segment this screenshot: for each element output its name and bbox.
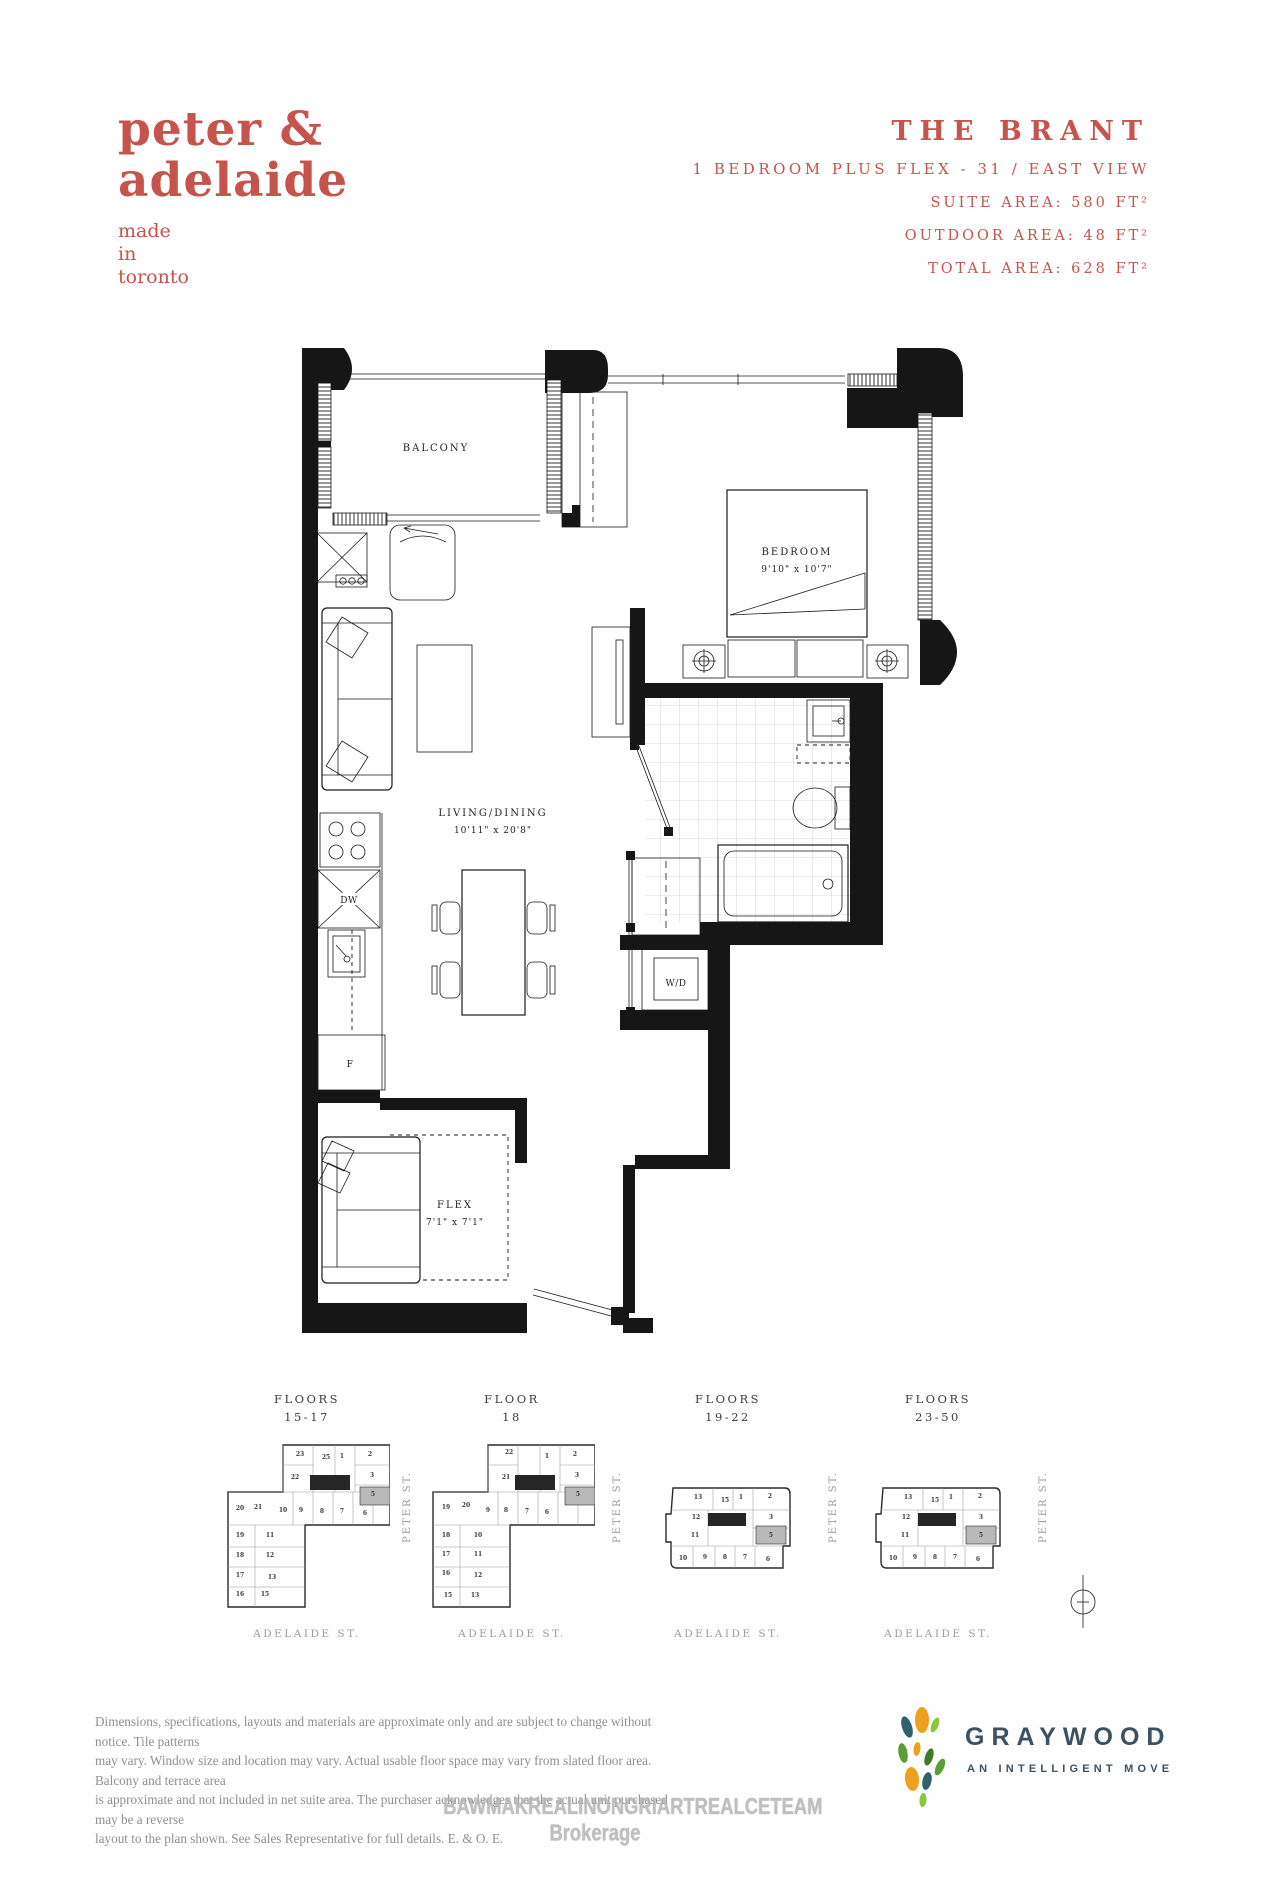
- dining-chair: [527, 962, 547, 998]
- nightstand-right: [867, 645, 908, 678]
- keyplan-unit-number: 2: [978, 1493, 982, 1500]
- keyplan-unit-number: 10: [889, 1555, 897, 1562]
- peter-street-label-3: PETER ST.: [828, 1452, 839, 1562]
- keyplan-unit-number: 9: [913, 1554, 917, 1561]
- dining-chair: [440, 902, 460, 934]
- keyplan-unit-number: 11: [901, 1532, 909, 1539]
- keyplan-unit-number: 5: [371, 1491, 375, 1498]
- balcony-window-right: [547, 380, 561, 513]
- wall-bedroom-south: [635, 683, 883, 698]
- bed: [727, 490, 867, 637]
- keyplan-unit-number: 13: [268, 1574, 276, 1581]
- disclaimer-line: Dimensions, specifications, layouts and …: [95, 1712, 675, 1751]
- balcony-window-left-1: [318, 383, 331, 441]
- balcony-label: BALCONY: [403, 443, 469, 454]
- keyplan-unit-number: 1: [545, 1453, 549, 1460]
- fridge-label: F: [347, 1060, 354, 1070]
- wall-flex-top: [380, 1098, 527, 1110]
- graywood-logo: GRAYWOOD AN INTELLIGENT MOVE: [895, 1705, 1195, 1815]
- suite-subtitle: 1 BEDROOM PLUS FLEX - 31 / EAST VIEW: [693, 160, 1150, 178]
- dining-table: [432, 870, 555, 1015]
- keyplan-unit-number: 8: [723, 1554, 727, 1561]
- balcony-window-bottom: [333, 513, 387, 525]
- keyplan-unit-number: 23: [296, 1451, 304, 1458]
- keyplan-floors-23-50: 131512123115109876: [873, 1480, 1003, 1572]
- keyplan-unit-number: 7: [743, 1554, 747, 1561]
- floorplan: BALCONY BEDROOM 9'10" x 10'7": [300, 345, 965, 1340]
- graywood-leaves-icon: [895, 1705, 955, 1809]
- kitchen-cabinet: [317, 533, 367, 587]
- brokerage-watermark: BAWMAKREALINONGRIARTREALCETEAM Brokerage: [443, 1795, 747, 1848]
- keyplan-unit-number: 12: [902, 1514, 910, 1521]
- entry-door-hinge: [611, 1307, 629, 1325]
- keyplan-unit-number: 21: [254, 1504, 262, 1511]
- wall-entry-right: [623, 1165, 635, 1313]
- keyplan-unit-number: 17: [236, 1572, 244, 1579]
- keyplan-unit-number: 3: [769, 1514, 773, 1521]
- keyplan-unit-number: 15: [931, 1497, 939, 1504]
- suite-header: THE BRANT 1 BEDROOM PLUS FLEX - 31 / EAS…: [693, 116, 1150, 277]
- keyplan-unit-number: 5: [979, 1532, 983, 1539]
- keyplan-unit-number: 1: [340, 1453, 344, 1460]
- keyplan-unit-number: 7: [525, 1508, 529, 1515]
- keyplan-unit-number: 18: [236, 1552, 244, 1559]
- kitchen-sink: [328, 930, 365, 977]
- brochure-page: peter & adelaide made in toronto THE BRA…: [0, 0, 1267, 1900]
- keyplan-unit-number: 9: [299, 1507, 303, 1514]
- logo-line2: adelaide: [118, 155, 348, 206]
- keyplan-unit-number: 2: [368, 1451, 372, 1458]
- keyplan-unit-number: 17: [442, 1551, 450, 1558]
- keyplan-unit-number: 15: [721, 1497, 729, 1504]
- keyplan-unit-number: 6: [976, 1556, 980, 1563]
- keyplan-title-4: FLOORS23-50: [853, 1390, 1023, 1426]
- wall-wd-right: [708, 935, 730, 1155]
- keyplan-unit-number: 5: [769, 1532, 773, 1539]
- wall-kitchen-bottom: [318, 1090, 380, 1103]
- keyplan-unit-number: 6: [545, 1509, 549, 1516]
- keyplan-unit-number: 10: [474, 1532, 482, 1539]
- keyplan-unit-number: 5: [576, 1491, 580, 1498]
- total-area: TOTAL AREA: 628 FT²: [693, 261, 1150, 277]
- disclaimer-line: may vary. Window size and location may v…: [95, 1751, 675, 1790]
- flex-pillow-2: [318, 1163, 350, 1193]
- keyplan-unit-number: 7: [340, 1508, 344, 1515]
- wall-bottom: [303, 1303, 527, 1333]
- keyplan-unit-number: 20: [236, 1505, 244, 1512]
- keyplan-unit-number: 10: [679, 1555, 687, 1562]
- compass-icon: [1058, 1575, 1108, 1630]
- dishwasher-label: DW: [340, 896, 358, 906]
- keyplan-unit-number: 8: [320, 1508, 324, 1515]
- armchair-back: [400, 536, 446, 542]
- tv-unit: [592, 627, 630, 737]
- adelaide-street-label-2: ADELAIDE ST.: [427, 1628, 597, 1640]
- balcony-window-left-2: [318, 447, 331, 508]
- floorplan-svg: BALCONY BEDROOM 9'10" x 10'7": [300, 345, 965, 1340]
- keyplan-unit-number: 9: [486, 1507, 490, 1514]
- bed-blanket-fold: [730, 573, 865, 615]
- cooktop: [320, 813, 380, 867]
- outdoor-area: OUTDOOR AREA: 48 FT²: [693, 228, 1150, 244]
- keyplan-title-1: FLOORS15-17: [222, 1390, 392, 1426]
- keyplan-unit-number: 20: [462, 1502, 470, 1509]
- keyplan-unit-number: 6: [766, 1556, 770, 1563]
- keyplan-unit-number: 19: [236, 1532, 244, 1539]
- keyplan-unit-number: 1: [949, 1494, 953, 1501]
- keyplan-unit-number: 11: [474, 1551, 482, 1558]
- keyplan-unit-number: 12: [692, 1514, 700, 1521]
- keyplan-floors-19-22: 131512123115109876: [663, 1480, 793, 1572]
- keyplan-unit-number: 16: [236, 1591, 244, 1598]
- logo-tagline-2: in: [118, 243, 348, 266]
- slider-arrow: [404, 526, 438, 534]
- wall-bedroom-ne: [847, 388, 930, 428]
- keyplan-floor-18: 22122135192098761810171116121513: [430, 1437, 595, 1612]
- adelaide-street-label-3: ADELAIDE ST.: [643, 1628, 813, 1640]
- adelaide-street-label-4: ADELAIDE ST.: [853, 1628, 1023, 1640]
- keyplan-unit-number: 13: [904, 1494, 912, 1501]
- peter-street-label-2: PETER ST.: [612, 1452, 623, 1562]
- graywood-wordmark: GRAYWOOD: [965, 1723, 1171, 1752]
- keyplan-unit-number: 22: [505, 1449, 513, 1456]
- sofa: [322, 608, 392, 790]
- keyplan-unit-number: 3: [370, 1472, 374, 1479]
- wd-label: W/D: [666, 979, 687, 989]
- suite-area: SUITE AREA: 580 FT²: [693, 195, 1150, 211]
- wall-bedroom-closet-cap: [572, 505, 580, 527]
- flex-sofa: [318, 1137, 420, 1283]
- wall-living-bath: [630, 608, 645, 745]
- keyplan-unit-number: 15: [261, 1591, 269, 1598]
- logo-line1: peter &: [118, 104, 348, 155]
- keyplan-unit-number: 8: [933, 1554, 937, 1561]
- dining-chair: [440, 962, 460, 998]
- flex-label: FLEX: [437, 1200, 473, 1211]
- keyplan-unit-number: 18: [442, 1532, 450, 1539]
- wall-bath-right: [850, 692, 883, 945]
- keyplan-unit-number: 6: [363, 1510, 367, 1517]
- graywood-tagline: AN INTELLIGENT MOVE: [967, 1763, 1173, 1775]
- dishwasher: DW: [318, 870, 380, 928]
- washer-dryer: W/D: [642, 947, 708, 1010]
- bedroom-window-ne: [848, 374, 897, 386]
- keyplan-unit-number: 9: [703, 1554, 707, 1561]
- keyplan-title-2: FLOOR18: [427, 1390, 597, 1426]
- keyplan-unit-number: 3: [575, 1472, 579, 1479]
- bedroom-label: BEDROOM: [762, 547, 833, 558]
- keyplan-unit-number: 3: [979, 1514, 983, 1521]
- bed-bench-right: [797, 640, 863, 677]
- keyplan-unit-number: 8: [504, 1507, 508, 1514]
- foyer-closet: [562, 392, 627, 527]
- keyplan-unit-number: 25: [322, 1454, 330, 1461]
- keyplan-unit-number: 11: [691, 1532, 699, 1539]
- keyplan-unit-number: 16: [442, 1570, 450, 1577]
- keyplan-unit-number: 21: [502, 1474, 510, 1481]
- keyplan-unit-number: 2: [768, 1493, 772, 1500]
- keyplan-unit-number: 7: [953, 1554, 957, 1561]
- keyplan-title-3: FLOORS19-22: [643, 1390, 813, 1426]
- dining-chair: [527, 902, 547, 934]
- keyplan-unit-number: 12: [266, 1552, 274, 1559]
- nightstand-left: [683, 645, 725, 678]
- keyplan-unit-number: 13: [471, 1592, 479, 1599]
- bedroom-window-east: [918, 413, 932, 620]
- fridge: F: [318, 1035, 385, 1090]
- coffee-table: [417, 645, 472, 752]
- adelaide-street-label-1: ADELAIDE ST.: [222, 1628, 392, 1640]
- keyplan-unit-number: 15: [444, 1592, 452, 1599]
- flex-pillow-1: [322, 1141, 354, 1171]
- keyplan-unit-number: 12: [474, 1572, 482, 1579]
- living-label: LIVING/DINING: [438, 808, 547, 819]
- bathroom-floor: [645, 698, 850, 922]
- window-mullion: [318, 441, 331, 447]
- living-dims: 10'11" x 20'8": [454, 826, 532, 836]
- left-wall: [302, 348, 318, 1333]
- keyplan-unit-number: 10: [279, 1507, 287, 1514]
- logo-tagline-1: made: [118, 220, 348, 243]
- logo-tagline-3: toronto: [118, 266, 348, 289]
- entry-door: [533, 1289, 616, 1317]
- keyplan-unit-number: 1: [739, 1494, 743, 1501]
- bed-bench-left: [728, 640, 795, 677]
- keyplan-unit-number: 22: [291, 1474, 299, 1481]
- wall-right-bump: [920, 620, 957, 685]
- keyplan-unit-number: 13: [694, 1494, 702, 1501]
- wall-flex-right: [515, 1100, 527, 1163]
- keyplan-unit-number: 2: [573, 1451, 577, 1458]
- peter-street-label-4: PETER ST.: [1038, 1452, 1049, 1562]
- sofa-pillow-bottom: [326, 741, 368, 782]
- flex-dims: 7'1" x 7'1": [426, 1218, 484, 1228]
- bedroom-dims: 9'10" x 10'7": [761, 565, 832, 575]
- suite-name: THE BRANT: [693, 116, 1150, 147]
- keyplan-floors-15-17: 232512223520211098761911181217131615: [225, 1437, 390, 1612]
- wall-entry-step: [635, 1155, 730, 1169]
- keyplan-unit-number: 19: [442, 1504, 450, 1511]
- peter-street-label-1: PETER ST.: [402, 1452, 413, 1562]
- project-logo: peter & adelaide made in toronto: [118, 104, 348, 289]
- hall-door: [626, 851, 635, 1016]
- keyplan-unit-number: 11: [266, 1532, 274, 1539]
